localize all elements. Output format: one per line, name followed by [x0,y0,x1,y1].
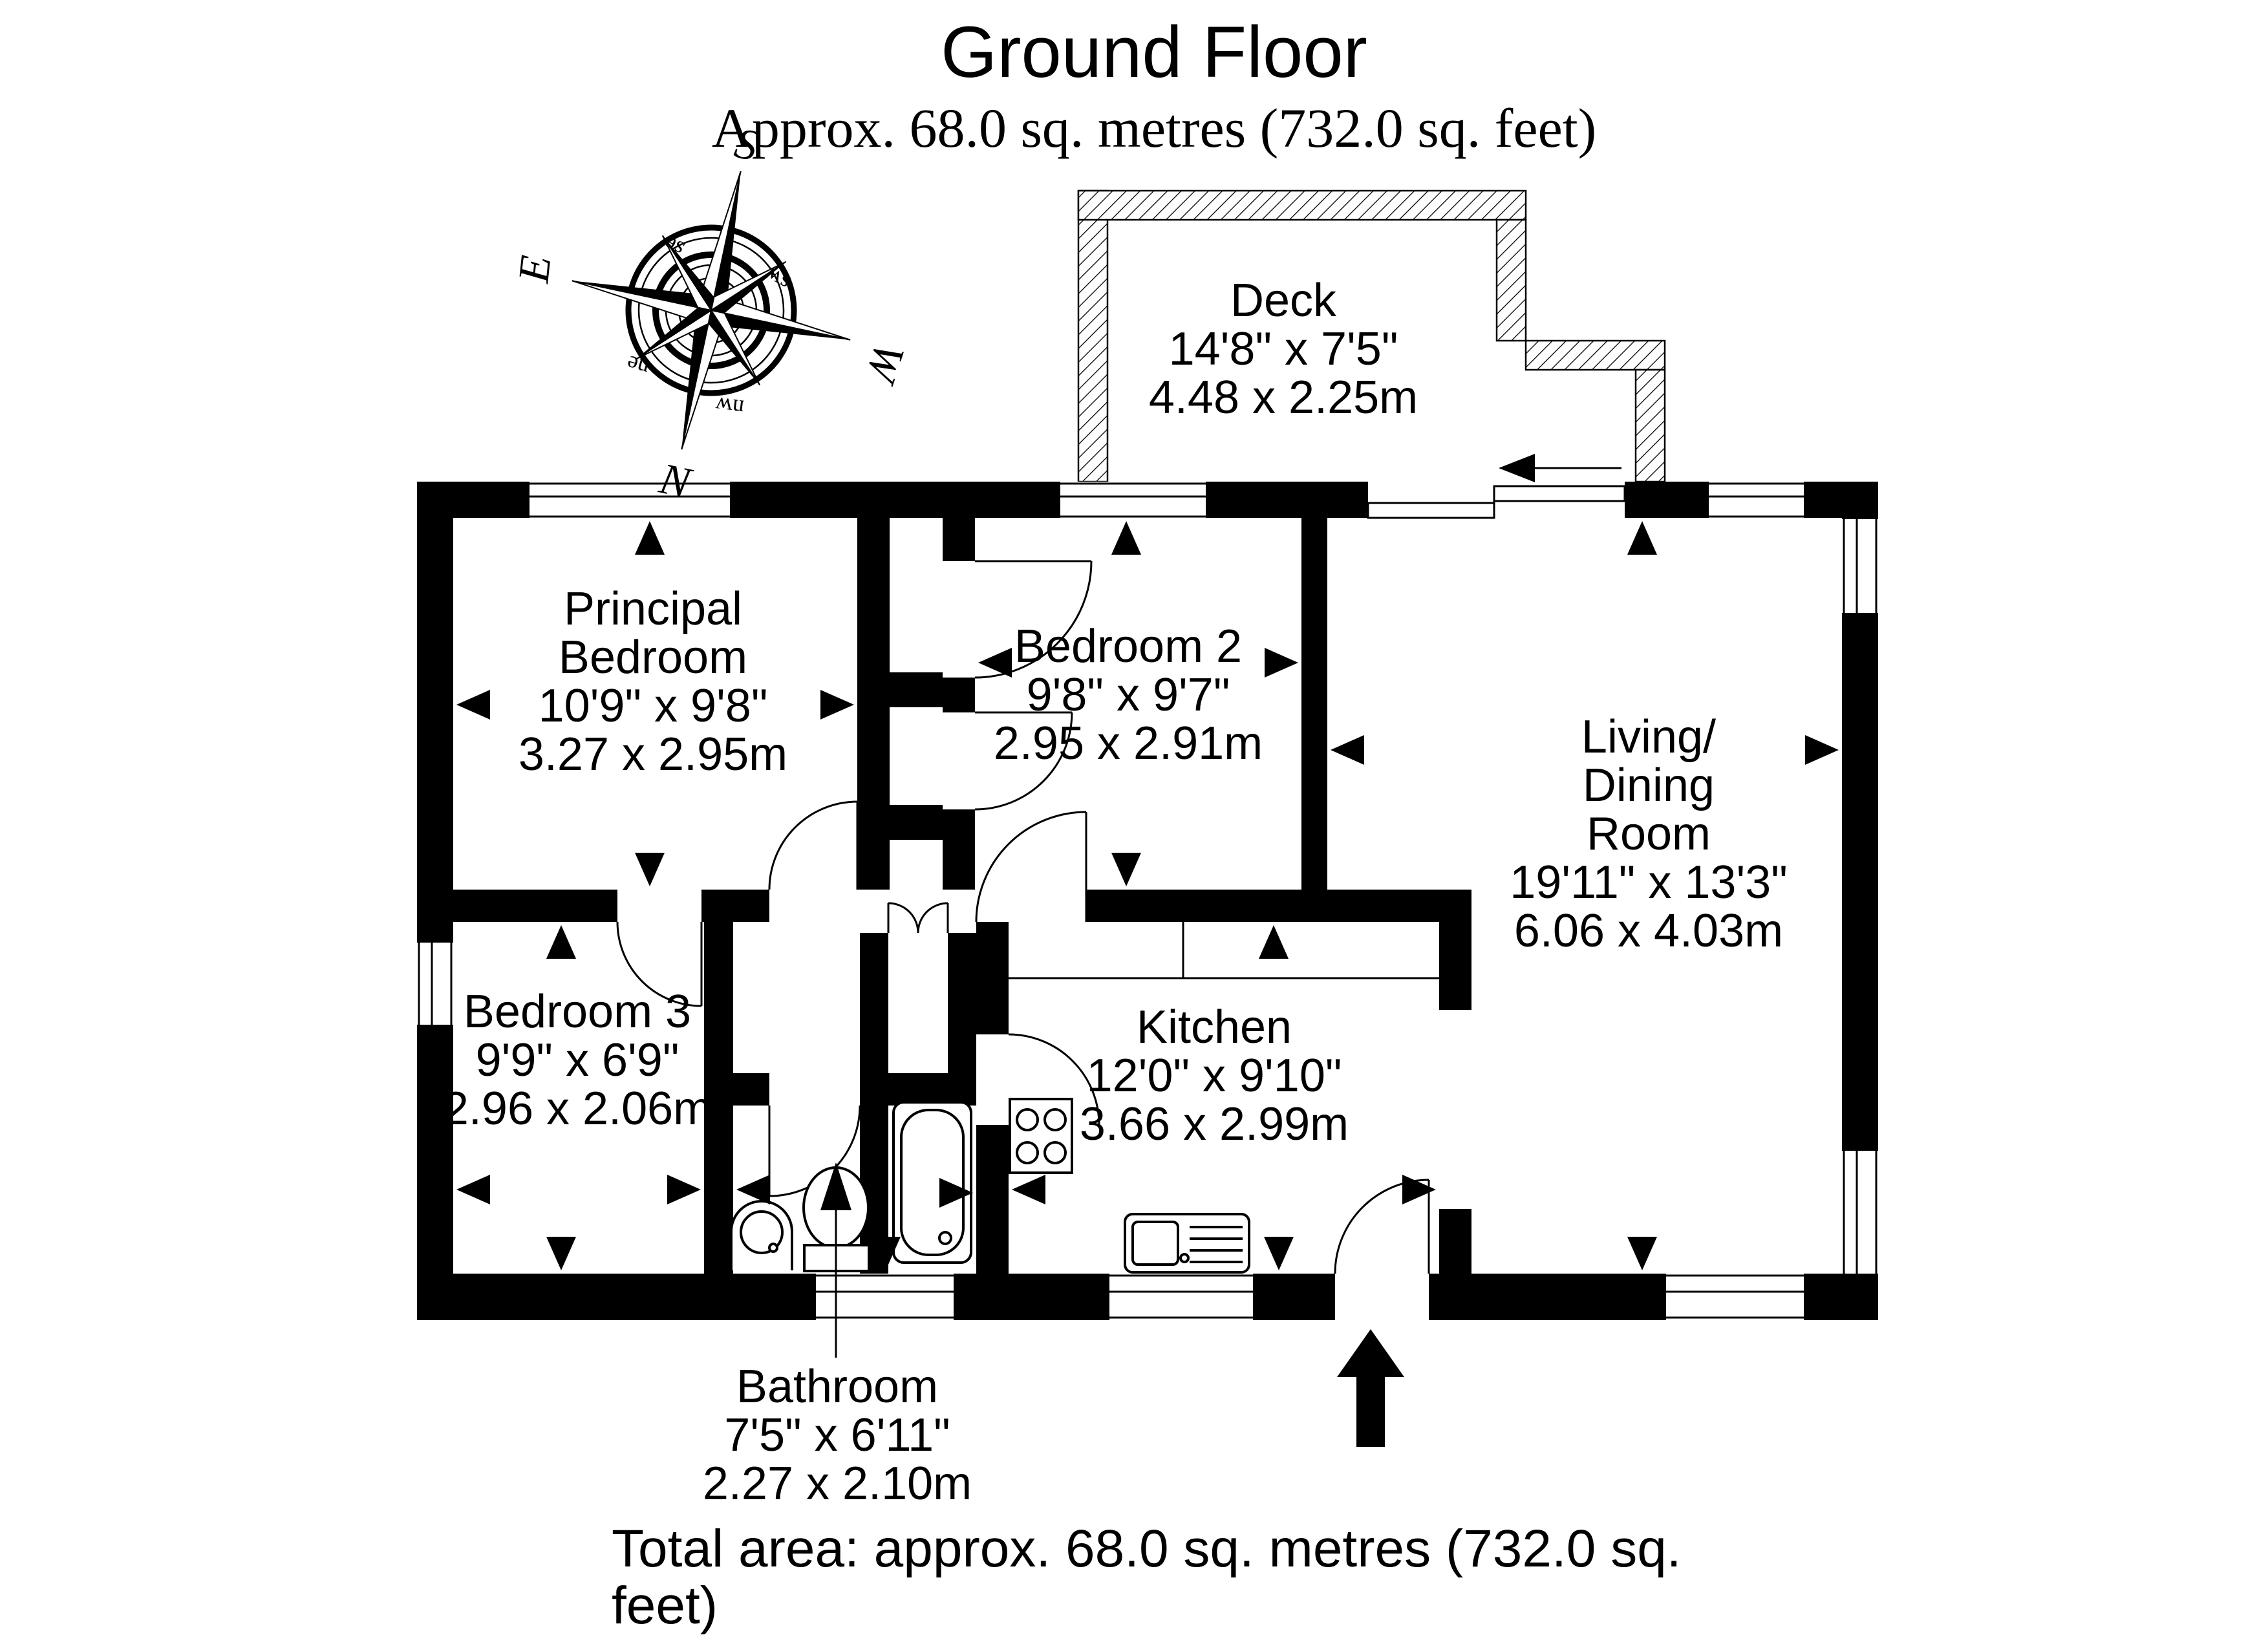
room-label-living-dining: Living/ Dining Room 19'11" x 13'3" 6.06 … [1510,713,1788,956]
compass-star [542,142,880,479]
compass-se-label: se [659,231,689,262]
room-name: Kitchen [1080,1003,1349,1052]
bathroom-door-gap [769,1073,860,1106]
room-dims-imperial: 9'8" x 9'7" [994,671,1263,720]
hob [1010,1099,1072,1173]
dimension-arrow-icon [736,1175,770,1204]
room-dims-metric: 2.27 x 2.10m [703,1460,972,1508]
total-area-text: Total area: approx. 68.0 sq. metres (732… [612,1521,1716,1634]
room-dims-imperial: 14'8" x 7'5" [1149,325,1418,374]
window-kitchen-bottom [1109,1274,1253,1320]
room-dims-imperial: 12'0" x 9'10" [1080,1052,1349,1100]
dimension-arrow-icon [546,925,576,959]
room-name: Bedroom [519,634,787,682]
page-title: Ground Floor [941,14,1367,91]
wall-kitchen-living-lower [1439,1209,1471,1274]
window-bedroom2-top [1060,482,1206,518]
dimension-arrow-icon [1805,735,1839,765]
deck-wall-step [1526,341,1665,370]
room-name: Dining [1510,762,1788,810]
room-dims-metric: 4.48 x 2.25m [1149,374,1418,422]
window-living-bottom [1666,1274,1804,1320]
wall-bedroom2-living [1301,518,1327,922]
dimension-arrow-icon [1402,1175,1436,1204]
compass-nw-label: nw [714,392,745,422]
room-dims-imperial: 19'11" x 13'3" [1510,859,1788,907]
kitchen-sink [1125,1214,1249,1272]
floor-plan-page: S N W E se sw ne nw Ground Floor Approx.… [0,0,2268,1603]
wall-hall-kitchen-upper [976,922,1009,1034]
room-dims-metric: 2.95 x 2.91m [994,720,1263,768]
room-label-deck: Deck 14'8" x 7'5" 4.48 x 2.25m [1149,277,1418,422]
page-subtitle: Approx. 68.0 sq. metres (732.0 sq. feet) [712,98,1597,158]
floor-plan-drawing: S N W E se sw ne nw [0,0,2268,1603]
deck-wall-top [1078,191,1526,220]
closet-b-door-gap [943,712,975,809]
principal-door-gap [769,890,857,922]
compass-east-label: E [508,253,560,285]
window-living-right-upper [1842,519,1878,613]
room-name: Principal [519,585,787,634]
room-name: Living/ [1510,713,1788,762]
room-dims-imperial: 9'9" x 6'9" [443,1036,712,1085]
window-living-top [1709,482,1804,518]
patio-door-panel-left [1368,503,1494,518]
wall-closet-divider-upper [890,672,943,707]
closet-a-door-gap [943,561,975,678]
dimension-arrow-icon [1331,735,1364,765]
room-dims-metric: 2.96 x 2.06m [443,1085,712,1133]
wall-exterior-left [417,482,453,1320]
room-name: Deck [1149,277,1418,325]
dimension-arrow-icon [1259,925,1289,959]
deck-wall-right-upper [1497,220,1526,341]
linen-closet-double-doors [888,903,948,933]
room-label-bathroom: Bathroom 7'5" x 6'11" 2.27 x 2.10m [703,1363,972,1508]
dimension-arrow-icon [1627,521,1657,555]
dimension-arrow-icon [456,1175,490,1204]
wall-closet-divider-lower [890,805,943,840]
dimension-arrow-icon [1627,1237,1657,1270]
wall-bathroom-kitchen-lower [976,1125,1009,1274]
room-dims-imperial: 10'9" x 9'8" [519,682,787,731]
wall-principal-closet [857,518,890,890]
wall-kitchen-living-upper [1439,922,1471,1010]
bathroom-sink [731,1201,792,1270]
kitchen-counter [1009,922,1439,978]
dimension-arrow-icon [1265,648,1298,678]
dimension-arrow-icon [546,1237,576,1270]
room-label-bedroom-3: Bedroom 3 9'9" x 6'9" 2.96 x 2.06m [443,988,712,1133]
wall-kitchen-top [1327,890,1471,922]
room-label-principal-bedroom: Principal Bedroom 10'9" x 9'8" 3.27 x 2.… [519,585,787,779]
window-living-right-lower [1842,1151,1878,1274]
principal-bedroom-door [769,802,857,890]
deck-wall-right-lower [1636,370,1665,482]
window-principal-top [530,482,730,518]
room-name: Bathroom [703,1363,972,1411]
room-name: Bedroom 3 [443,988,712,1036]
bathtub [893,1102,971,1263]
room-dims-metric: 6.06 x 4.03m [1510,907,1788,956]
dimension-arrow-icon [1264,1237,1294,1270]
bedroom3-door-gap [617,890,701,922]
room-dims-metric: 3.27 x 2.95m [519,731,787,779]
patio-door-panel-right [1494,486,1625,501]
dimension-arrow-icon [1111,853,1141,886]
sliding-door-arrow-icon [1499,454,1535,482]
room-dims-metric: 3.66 x 2.99m [1080,1100,1349,1149]
room-name: Room [1510,810,1788,859]
dimension-arrow-icon [820,690,854,720]
dimension-arrow-icon [635,853,665,886]
dimension-arrow-icon [635,521,665,555]
room-label-bedroom-2: Bedroom 2 9'8" x 9'7" 2.95 x 2.91m [994,623,1263,768]
dimension-arrow-icon [1111,521,1141,555]
room-name: Bedroom 2 [994,623,1263,671]
dimension-arrow-icon [456,690,490,720]
wall-closet2-left [860,933,888,1073]
entrance-arrow-icon [1337,1329,1404,1447]
wall-closet2-right [948,933,976,1073]
dimension-arrow-icon [1012,1175,1045,1204]
bedroom2-door-gap [975,890,1086,922]
deck-wall-left [1078,191,1107,482]
entrance-door-gap [1335,1274,1429,1320]
compass-west-label: W [856,337,915,390]
dimension-arrow-icon [667,1175,701,1204]
room-label-kitchen: Kitchen 12'0" x 9'10" 3.66 x 2.99m [1080,1003,1349,1149]
room-dims-imperial: 7'5" x 6'11" [703,1411,972,1460]
compass-ne-label: ne [623,350,652,381]
